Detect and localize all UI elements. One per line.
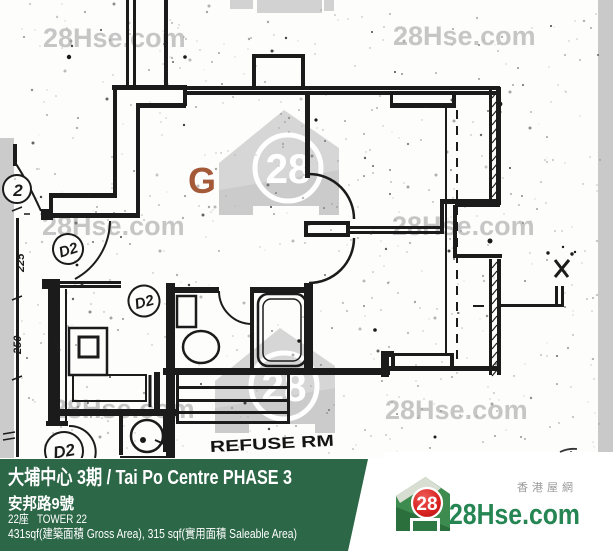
svg-text:香港屋網: 香港屋網 xyxy=(517,480,577,494)
svg-text:28: 28 xyxy=(416,494,437,515)
svg-text:431sqf(建築面積 Gross Area), 315 s: 431sqf(建築面積 Gross Area), 315 sqf(實用面積 Sa… xyxy=(8,526,297,541)
svg-text:2: 2 xyxy=(12,181,23,200)
svg-text:28Hse.com: 28Hse.com xyxy=(393,21,536,51)
svg-text:28Hse.com: 28Hse.com xyxy=(385,395,528,425)
svg-text:250: 250 xyxy=(12,335,24,355)
svg-text:22座 TOWER 22: 22座 TOWER 22 xyxy=(8,511,87,526)
svg-text:28: 28 xyxy=(266,145,311,192)
svg-text:28Hse.com: 28Hse.com xyxy=(449,499,580,531)
svg-text:大埔中心 3期 / Tai Po Centre PHASE: 大埔中心 3期 / Tai Po Centre PHASE 3 xyxy=(8,465,292,489)
svg-text:G: G xyxy=(188,160,216,201)
svg-text:225: 225 xyxy=(15,253,27,273)
svg-text:安邦路9號: 安邦路9號 xyxy=(8,494,74,513)
